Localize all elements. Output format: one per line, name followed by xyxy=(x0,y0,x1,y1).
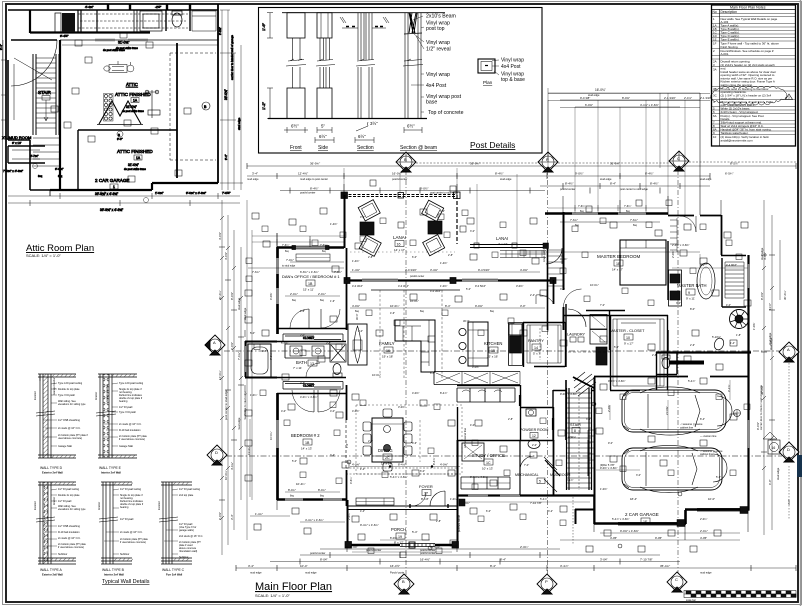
svg-text:9'-4 5/16": 9'-4 5/16" xyxy=(478,268,490,272)
svg-text:Porch/ porte: Porch/ porte xyxy=(390,571,405,575)
svg-text:Typical Wall Details: Typical Wall Details xyxy=(102,579,150,585)
svg-text:5'-10⅝": 5'-10⅝" xyxy=(712,335,721,339)
svg-text:A: A xyxy=(787,347,790,352)
svg-text:P: P xyxy=(545,579,548,584)
svg-text:8' x 8': 8' x 8' xyxy=(421,497,429,501)
svg-text:stud edge: stud edge xyxy=(237,117,241,130)
svg-text:mud edge: mud edge xyxy=(700,571,712,575)
svg-text:8'-4½": 8'-4½" xyxy=(310,187,318,191)
svg-text:post center to stud edge: post center to stud edge xyxy=(224,390,228,420)
svg-text:7'-6¾": 7'-6¾" xyxy=(624,204,631,208)
svg-text:3'-6": 3'-6" xyxy=(586,418,591,421)
svg-text:Exterior: Exterior xyxy=(157,501,161,510)
svg-text:stud edge: stud edge xyxy=(237,297,241,310)
svg-text:used above concrete): used above concrete) xyxy=(58,437,82,440)
svg-text:1'-0¾": 1'-0¾" xyxy=(250,393,257,397)
svg-text:Post Details: Post Details xyxy=(470,140,515,150)
svg-text:2'-1 3/16": 2'-1 3/16" xyxy=(700,96,712,100)
svg-text:elevations for siding type: elevations for siding type xyxy=(58,403,86,406)
svg-text:1/2" OSB sheathing: 1/2" OSB sheathing xyxy=(58,419,80,422)
svg-text:5'-4⅞": 5'-4⅞" xyxy=(566,478,573,482)
svg-text:5'-0": 5'-0" xyxy=(292,460,297,463)
svg-text:16: 16 xyxy=(397,243,401,247)
svg-text:8sq: 8sq xyxy=(38,174,43,178)
svg-text:30'-6¾": 30'-6¾" xyxy=(783,291,787,300)
svg-text:Main Floor Plan: Main Floor Plan xyxy=(255,581,332,593)
svg-text:2'-0¾": 2'-0¾" xyxy=(700,517,707,521)
svg-text:Vinyl wrap: Vinyl wrap xyxy=(426,40,450,46)
svg-text:Exterior 2x6 Wall: Exterior 2x6 Wall xyxy=(42,573,63,577)
svg-text:8'-4": 8'-4" xyxy=(610,182,616,186)
svg-text:Double 2x top plate: Double 2x top plate xyxy=(58,494,80,497)
svg-text:9'-0 3/8": 9'-0 3/8" xyxy=(580,96,590,100)
svg-text:STAIR: STAIR xyxy=(38,90,52,95)
svg-text:2'-4⅜" x 4'-6⅜": 2'-4⅜" x 4'-6⅜" xyxy=(672,243,689,247)
svg-text:1/2" Drywall: 1/2" Drywall xyxy=(119,406,133,409)
svg-text:2'-0⅞": 2'-0⅞" xyxy=(684,96,692,100)
svg-text:2'-0⅜": 2'-0⅜" xyxy=(607,405,611,412)
svg-text:6½": 6½" xyxy=(319,134,327,139)
svg-text:1'-8": 1'-8" xyxy=(262,350,267,353)
svg-text:5'-4": 5'-4" xyxy=(440,210,445,213)
svg-text:8'-4": 8'-4" xyxy=(700,418,705,421)
svg-text:/foundation wall): /foundation wall) xyxy=(179,550,197,553)
svg-text:9: 9 xyxy=(688,291,690,295)
svg-text:garage walls): garage walls) xyxy=(179,529,194,532)
svg-text:2'-8": 2'-8" xyxy=(652,354,657,357)
svg-text:2x4 studs @ 16" O.C.: 2x4 studs @ 16" O.C. xyxy=(179,535,203,538)
svg-text:LAUNDRY: LAUNDRY xyxy=(567,333,586,337)
svg-text:C: C xyxy=(675,577,678,582)
svg-text:8'-4½": 8'-4½" xyxy=(650,182,658,186)
svg-text:36'-9¾": 36'-9¾" xyxy=(310,162,320,166)
svg-text:if used above concrete): if used above concrete) xyxy=(119,438,145,441)
svg-text:17: 17 xyxy=(424,492,428,496)
svg-text:1B: 1B xyxy=(616,262,621,266)
svg-text:A: A xyxy=(213,340,216,345)
svg-text:SCALE: 1/4" = 1'-0": SCALE: 1/4" = 1'-0" xyxy=(26,253,61,258)
svg-text:1'-0⅜": 1'-0⅜" xyxy=(600,487,607,491)
svg-text:1B: 1B xyxy=(308,282,313,286)
svg-text:36'-9¾": 36'-9¾" xyxy=(610,162,620,166)
svg-text:mud edge to post center: mud edge to post center xyxy=(300,177,328,181)
svg-text:3'-4": 3'-4" xyxy=(252,172,258,176)
svg-text:mud edge: mud edge xyxy=(250,571,262,575)
svg-text:6½": 6½" xyxy=(291,124,299,129)
svg-text:9'-0½": 9'-0½" xyxy=(420,187,428,191)
svg-text:4'-05": 4'-05" xyxy=(610,536,617,540)
svg-text:31'-0¾": 31'-0¾" xyxy=(128,163,139,167)
svg-text:New walls. See Typical Wall De: New walls. See Typical Wall Details on p… xyxy=(721,17,778,21)
svg-text:stud edge: stud edge xyxy=(776,467,780,480)
svg-text:4'-0 3/16": 4'-0 3/16" xyxy=(430,289,441,293)
svg-text:scale bar: scale bar xyxy=(686,599,696,602)
svg-text:Double 2x top plate: Double 2x top plate xyxy=(58,388,80,391)
svg-text:7' x 11': 7' x 11' xyxy=(293,366,303,370)
svg-text:Linen cab't: Linen cab't xyxy=(542,249,546,262)
svg-text:8'-4": 8'-4" xyxy=(445,304,451,308)
svg-text:9'-0": 9'-0" xyxy=(117,137,123,141)
svg-text:8'-4": 8'-4" xyxy=(490,564,496,568)
svg-text:4'-4¾" x 4'-6¾": 4'-4¾" x 4'-6¾" xyxy=(305,518,324,522)
svg-text:stud edge: stud edge xyxy=(769,337,773,350)
svg-text:7'-0¾" x 4'-6¾": 7'-0¾" x 4'-6¾" xyxy=(3,169,23,173)
svg-text:3'-2": 3'-2" xyxy=(548,510,553,513)
svg-text:if used above concrete): if used above concrete) xyxy=(58,546,84,549)
svg-text:Subfloor: Subfloor xyxy=(120,553,129,556)
svg-text:7'-0": 7'-0" xyxy=(524,463,529,467)
svg-text:1'-2": 1'-2" xyxy=(261,101,266,110)
svg-text:PORCH: PORCH xyxy=(391,527,406,532)
svg-text:andall@mrostermite.com: andall@mrostermite.com xyxy=(721,138,754,142)
svg-text:LANAI: LANAI xyxy=(496,236,508,241)
svg-text:WALL TYPE B: WALL TYPE B xyxy=(102,568,125,572)
svg-text:Interior 2x4 Wall: Interior 2x4 Wall xyxy=(104,573,124,577)
svg-text:16'-0¾": 16'-0¾" xyxy=(410,299,419,303)
svg-text:1B: 1B xyxy=(305,441,310,445)
svg-text:PANTRY: PANTRY xyxy=(528,338,544,343)
svg-text:1'-6": 1'-6" xyxy=(261,22,266,31)
svg-text:(9)Rsr: (9)Rsr xyxy=(568,435,576,439)
svg-text:A-001.: A-001. xyxy=(721,52,730,56)
svg-text:36'-0¾": 36'-0¾" xyxy=(760,386,764,395)
svg-text:5'-4": 5'-4" xyxy=(412,530,418,534)
svg-text:4' x 17': 4' x 17' xyxy=(498,242,508,246)
svg-text:3C: 3C xyxy=(713,94,717,98)
svg-text:8'-04": 8'-04" xyxy=(350,545,358,549)
svg-text:1'-0¾": 1'-0¾" xyxy=(155,191,163,195)
svg-text:2 CAR GARAGE: 2 CAR GARAGE xyxy=(625,512,659,517)
svg-text:4'-0 3/16": 4'-0 3/16" xyxy=(398,284,409,288)
svg-text:3'-0": 3'-0" xyxy=(470,230,475,233)
svg-text:BEDROOM # 2: BEDROOM # 2 xyxy=(291,433,320,438)
svg-text:stud edge: stud edge xyxy=(500,177,512,181)
svg-text:post/sl center: post/sl center xyxy=(410,275,424,278)
svg-text:Garage Slab: Garage Slab xyxy=(119,445,134,448)
svg-text:16'-0¾": 16'-0¾" xyxy=(372,373,381,377)
svg-text:4'-0⅜": 4'-0⅜" xyxy=(520,268,528,272)
svg-text:post center to stud edge: post center to stud edge xyxy=(430,191,458,195)
svg-text:4'-0⅜": 4'-0⅜" xyxy=(763,252,767,260)
svg-text:5: 5 xyxy=(539,480,541,484)
svg-text:9'-0⅜": 9'-0⅜" xyxy=(472,365,479,369)
svg-text:16'-0¾": 16'-0¾" xyxy=(590,283,599,287)
svg-text:8sq: 8sq xyxy=(490,310,495,313)
svg-text:C: C xyxy=(677,156,680,161)
svg-text:6½": 6½" xyxy=(358,134,366,139)
svg-text:2'-0": 2'-0" xyxy=(368,440,373,443)
svg-text:5'-4⅞" x 4'-6⅜": 5'-4⅞" x 4'-6⅜" xyxy=(612,517,629,521)
svg-text:mud edge: mud edge xyxy=(305,571,317,575)
svg-text:1'-4": 1'-4" xyxy=(345,443,349,448)
svg-text:5'-0": 5'-0" xyxy=(250,331,255,335)
svg-text:3'-0": 3'-0" xyxy=(676,302,681,305)
svg-text:stud edge: stud edge xyxy=(700,177,712,181)
svg-text:10'-4": 10'-4" xyxy=(300,564,308,568)
svg-text:4'-0⅜": 4'-0⅜" xyxy=(352,304,360,308)
svg-text:8sq: 8sq xyxy=(292,299,297,302)
svg-text:2'-8": 2'-8" xyxy=(326,341,331,345)
svg-text:Type X Drywall: Type X Drywall xyxy=(58,394,75,397)
svg-text:1/2" Drywall: 1/2" Drywall xyxy=(58,500,72,503)
svg-text:7'-6¾": 7'-6¾" xyxy=(630,218,638,222)
svg-text:Side: Side xyxy=(318,145,328,151)
svg-text:9'-0⅜" x 4'-6⅜": 9'-0⅜" x 4'-6⅜" xyxy=(608,379,625,383)
svg-text:Exterior: Exterior xyxy=(33,391,37,400)
svg-text:ATTIC: ATTIC xyxy=(126,82,138,87)
svg-text:4'-05": 4'-05" xyxy=(700,536,707,540)
svg-text:10' x 13': 10' x 13' xyxy=(482,467,493,471)
svg-text:3'-4": 3'-4" xyxy=(248,564,254,568)
svg-text:4'-4¾": 4'-4¾" xyxy=(85,5,93,9)
svg-text:cabinet line: cabinet line xyxy=(680,426,694,430)
svg-text:15: 15 xyxy=(491,349,495,353)
svg-text:Description: Description xyxy=(721,10,738,14)
svg-text:2'-6": 2'-6" xyxy=(690,344,695,347)
svg-text:9'-0¾" x 4'-6¾": 9'-0¾" x 4'-6¾" xyxy=(186,191,206,195)
svg-text:10'-0¾": 10'-0¾" xyxy=(269,431,273,440)
svg-text:2'-8": 2'-8" xyxy=(448,254,453,257)
svg-text:STUDY / OFFICE: STUDY / OFFICE xyxy=(472,453,505,458)
svg-text:SCALE: 1/4" = 1'-0": SCALE: 1/4" = 1'-0" xyxy=(255,593,290,598)
svg-text:16'-0¾": 16'-0¾" xyxy=(390,304,399,308)
svg-text:9'-05": 9'-05" xyxy=(655,536,662,540)
svg-text:10: 10 xyxy=(713,135,717,139)
svg-text:9'-0": 9'-0" xyxy=(360,216,365,219)
svg-text:9'-4": 9'-4" xyxy=(0,44,3,50)
svg-text:FOYER: FOYER xyxy=(419,484,433,489)
svg-text:8'-4½": 8'-4½" xyxy=(495,172,503,176)
svg-text:16'-4½": 16'-4½" xyxy=(390,564,400,568)
svg-text:mud edge: mud edge xyxy=(247,177,259,181)
svg-text:2x studs @ 16" O.C.: 2x studs @ 16" O.C. xyxy=(120,531,143,534)
svg-text:KITCHEN: KITCHEN xyxy=(484,341,502,346)
svg-text:6'-8": 6'-8" xyxy=(300,310,305,313)
svg-text:6A: 6A xyxy=(713,114,717,118)
svg-text:Subfloor: Subfloor xyxy=(58,553,67,556)
svg-text:Interior: Interior xyxy=(94,392,98,400)
svg-text:4'-4": 4'-4" xyxy=(360,510,365,513)
svg-text:4'-0": 4'-0" xyxy=(330,409,335,413)
svg-text:15' x 16': 15' x 16' xyxy=(487,355,498,359)
svg-text:6'-0": 6'-0" xyxy=(768,479,772,485)
svg-text:top & base: top & base xyxy=(501,77,525,83)
svg-text:10: 10 xyxy=(626,336,630,340)
svg-text:WALL TYPE C: WALL TYPE C xyxy=(162,568,185,572)
svg-text:1/2" Drywall ceiling: 1/2" Drywall ceiling xyxy=(179,488,201,491)
svg-text:if used above concrete): if used above concrete) xyxy=(120,541,146,544)
svg-text:9'-4¾" x 4'-6¾": 9'-4¾" x 4'-6¾" xyxy=(360,523,379,527)
svg-text:8'-0": 8'-0" xyxy=(690,307,695,311)
svg-text:5": 5" xyxy=(321,124,325,129)
svg-text:13'-4¾": 13'-4¾" xyxy=(247,446,251,455)
svg-text:3A: 3A xyxy=(713,68,717,72)
svg-text:Plan: Plan xyxy=(483,80,493,85)
svg-text:Vinyl wrap: Vinyl wrap xyxy=(501,58,524,64)
svg-text:5'-6": 5'-6" xyxy=(716,476,721,479)
svg-text:Type A Drywall ceiling: Type A Drywall ceiling xyxy=(58,382,83,385)
svg-text:6'-0⅜": 6'-0⅜" xyxy=(218,512,222,520)
svg-text:8'-4⅞": 8'-4⅞" xyxy=(432,458,436,465)
svg-text:1F: 1F xyxy=(713,42,717,46)
svg-text:1'-0¾": 1'-0¾" xyxy=(450,497,457,501)
svg-text:6'-0": 6'-0" xyxy=(412,256,417,259)
svg-text:Furr 2x4 Wall: Furr 2x4 Wall xyxy=(166,573,182,577)
svg-text:4'-0⅜": 4'-0⅜" xyxy=(560,257,567,261)
svg-text:BATH: BATH xyxy=(296,360,307,365)
svg-text:2'-0¾": 2'-0¾" xyxy=(318,292,326,296)
svg-text:7'-0": 7'-0" xyxy=(600,304,605,307)
svg-text:7'-0½": 7'-0½" xyxy=(222,191,230,195)
svg-text:do post strike truss: do post strike truss xyxy=(103,48,125,52)
svg-text:6'-0¾": 6'-0¾" xyxy=(218,27,222,35)
svg-text:4x4 Post: 4x4 Post xyxy=(426,83,447,89)
svg-text:9'-0⅜": 9'-0⅜" xyxy=(756,422,760,430)
svg-text:DINING: DINING xyxy=(378,448,393,453)
svg-text:19' x 18': 19' x 18' xyxy=(382,355,393,359)
svg-text:bearing: bearing xyxy=(119,400,128,403)
svg-text:WALL TYPE D: WALL TYPE D xyxy=(40,466,63,470)
svg-text:9' x 17': 9' x 17' xyxy=(624,342,634,346)
svg-text:6'-0⅜": 6'-0⅜" xyxy=(585,103,593,107)
svg-text:9'-0 5/16": 9'-0 5/16" xyxy=(475,284,486,288)
svg-text:Section @ beam: Section @ beam xyxy=(400,145,437,151)
svg-text:R-19 batt insulation: R-19 batt insulation xyxy=(58,531,80,534)
svg-text:3'-0": 3'-0" xyxy=(636,474,641,477)
svg-text:14' x 17': 14' x 17' xyxy=(394,248,405,252)
svg-text:3'-1⅞": 3'-1⅞" xyxy=(727,385,731,392)
svg-text:1A: 1A xyxy=(136,156,141,160)
svg-text:2'-8": 2'-8" xyxy=(368,256,373,259)
svg-text:12'-0¾": 12'-0¾" xyxy=(218,371,222,380)
svg-text:8'-0⅜": 8'-0⅜" xyxy=(230,292,234,300)
svg-text:Subfloor: Subfloor xyxy=(179,556,188,559)
svg-text:LANAI: LANAI xyxy=(393,235,406,240)
svg-text:2'-0¾": 2'-0¾" xyxy=(290,292,298,296)
svg-text:9'-0⅜" x 4'-6⅜": 9'-0⅜" x 4'-6⅜" xyxy=(600,466,617,470)
svg-text:MASTER BATH: MASTER BATH xyxy=(677,283,706,288)
svg-text:3'-0⅜": 3'-0⅜" xyxy=(516,284,523,288)
svg-text:4'-0⅜": 4'-0⅜" xyxy=(218,232,222,240)
svg-text:2'-0¾": 2'-0¾" xyxy=(520,545,528,549)
svg-text:4'-0": 4'-0" xyxy=(470,424,475,427)
svg-text:4'-6¾": 4'-6¾" xyxy=(230,462,234,470)
svg-text:Garage Slab: Garage Slab xyxy=(58,445,73,448)
svg-text:base: base xyxy=(426,100,437,106)
svg-text:9'-0⅜" x 4'-6⅜": 9'-0⅜" x 4'-6⅜" xyxy=(620,529,639,533)
svg-text:Interior: Interior xyxy=(97,502,101,510)
svg-text:8'-04": 8'-04" xyxy=(320,558,328,562)
svg-text:elevations for siding type: elevations for siding type xyxy=(58,508,86,511)
svg-text:10'-4¾": 10'-4¾" xyxy=(296,482,305,486)
svg-text:36'-0¾": 36'-0¾" xyxy=(224,89,228,100)
svg-text:7'-10 7/8": 7'-10 7/8" xyxy=(640,558,653,562)
svg-text:11'-0": 11'-0" xyxy=(768,303,772,310)
svg-text:2'-0⅜": 2'-0⅜" xyxy=(671,251,675,258)
svg-text:4'-0⅜": 4'-0⅜" xyxy=(269,293,273,300)
svg-text:Section: Section xyxy=(357,145,374,151)
svg-text:16: 16 xyxy=(386,349,390,353)
svg-text:5'-4⅞" x 4'-6⅜": 5'-4⅞" x 4'-6⅜" xyxy=(390,475,407,479)
svg-text:4'-7¾": 4'-7¾" xyxy=(30,154,38,158)
svg-text:5'-4⅞": 5'-4⅞" xyxy=(688,379,695,383)
svg-text:cabinet line: cabinet line xyxy=(700,452,714,456)
svg-text:-2½": -2½" xyxy=(155,5,161,9)
svg-text:4'-4⅞" x 4'-6⅜": 4'-4⅞" x 4'-6⅜" xyxy=(640,103,659,107)
svg-text:2'-4": 2'-4" xyxy=(530,294,535,297)
svg-text:8sq: 8sq xyxy=(290,495,295,498)
svg-text:11' x 14': 11' x 14' xyxy=(381,462,392,466)
svg-text:post/sl center: post/sl center xyxy=(366,548,382,552)
svg-text:Interior: Interior xyxy=(52,497,56,505)
svg-text:30'-0": 30'-0" xyxy=(463,319,470,323)
svg-text:12'-4½": 12'-4½" xyxy=(298,172,308,176)
svg-text:2'-0": 2'-0" xyxy=(358,330,363,333)
svg-text:2x studs @ 16" O.C.: 2x studs @ 16" O.C. xyxy=(119,423,142,426)
svg-text:1'-8": 1'-8" xyxy=(736,334,741,337)
svg-text:4'-0 3/16": 4'-0 3/16" xyxy=(352,284,363,288)
svg-text:FAMILY: FAMILY xyxy=(379,341,395,346)
svg-text:WALL TYPE A: WALL TYPE A xyxy=(40,568,62,572)
svg-text:4'-0": 4'-0" xyxy=(700,263,705,267)
svg-text:X'L MUD ROOM: X'L MUD ROOM xyxy=(2,135,31,140)
svg-text:8'-4½": 8'-4½" xyxy=(565,182,573,186)
svg-text:1/2" Drywall ceiling: 1/2" Drywall ceiling xyxy=(58,488,80,491)
svg-text:8'-0¾": 8'-0¾" xyxy=(318,488,326,492)
svg-text:4'-0 3/16": 4'-0 3/16" xyxy=(405,268,417,272)
svg-text:1A: 1A xyxy=(133,99,138,103)
svg-text:MUD ROOM: MUD ROOM xyxy=(550,473,570,477)
svg-text:6½": 6½" xyxy=(407,124,415,129)
svg-text:16: 16 xyxy=(772,446,776,450)
svg-text:8sq: 8sq xyxy=(320,495,325,498)
svg-text:2x4 top plate: 2x4 top plate xyxy=(179,494,194,497)
svg-text:4'-6¾": 4'-6¾" xyxy=(349,477,353,484)
svg-text:1/2" OSB sheathing: 1/2" OSB sheathing xyxy=(58,525,80,528)
svg-text:4'-0⅜": 4'-0⅜" xyxy=(352,463,360,467)
svg-text:post/sl center: post/sl center xyxy=(310,551,326,555)
svg-text:2'-0¾": 2'-0¾" xyxy=(347,513,351,520)
svg-text:13: 13 xyxy=(310,362,314,366)
svg-text:(2) 2x12's header on (2) 2x4 s: (2) 2x12's header on (2) 2x4 studs at ea… xyxy=(721,63,776,67)
svg-text:6'-5¾": 6'-5¾" xyxy=(725,172,733,176)
svg-text:do post strike truss: do post strike truss xyxy=(124,167,146,171)
svg-text:3'-4⅞": 3'-4⅞" xyxy=(560,564,568,568)
svg-text:8sq: 8sq xyxy=(320,299,325,302)
svg-text:9'-0⅜" x 4'-6⅜": 9'-0⅜" x 4'-6⅜" xyxy=(560,392,577,396)
svg-text:8' x 17': 8' x 17' xyxy=(394,541,404,545)
svg-text:16'-4½": 16'-4½" xyxy=(420,558,430,562)
svg-text:3'-0": 3'-0" xyxy=(520,304,526,308)
svg-text:6'-0¾": 6'-0¾" xyxy=(55,167,63,171)
svg-text:7'-0¾": 7'-0¾" xyxy=(286,258,294,262)
svg-text:R-19 batt insulation: R-19 batt insulation xyxy=(119,429,141,432)
svg-text:36'-9¾" x 4'-6¾": 36'-9¾" x 4'-6¾" xyxy=(95,192,118,196)
svg-text:8'-0⅜": 8'-0⅜" xyxy=(390,536,397,540)
svg-text:2'-6": 2'-6" xyxy=(300,382,305,385)
svg-text:1'-4⅜": 1'-4⅜" xyxy=(352,268,360,272)
svg-text:5'-0⅜": 5'-0⅜" xyxy=(281,341,288,345)
svg-text:4'-0": 4'-0" xyxy=(726,304,731,307)
svg-text:2'-0": 2'-0" xyxy=(300,333,305,337)
svg-text:carrier center line: carrier center line xyxy=(463,427,467,448)
svg-text:1/2" Drywall ceiling: 1/2" Drywall ceiling xyxy=(120,488,142,491)
svg-text:5'-4⅞": 5'-4⅞" xyxy=(540,497,547,501)
svg-text:7'-6¾": 7'-6¾" xyxy=(282,243,289,247)
svg-text:7'-6¾": 7'-6¾" xyxy=(578,204,585,208)
svg-text:8sq: 8sq xyxy=(58,174,63,178)
svg-text:4'-0": 4'-0" xyxy=(281,409,286,413)
